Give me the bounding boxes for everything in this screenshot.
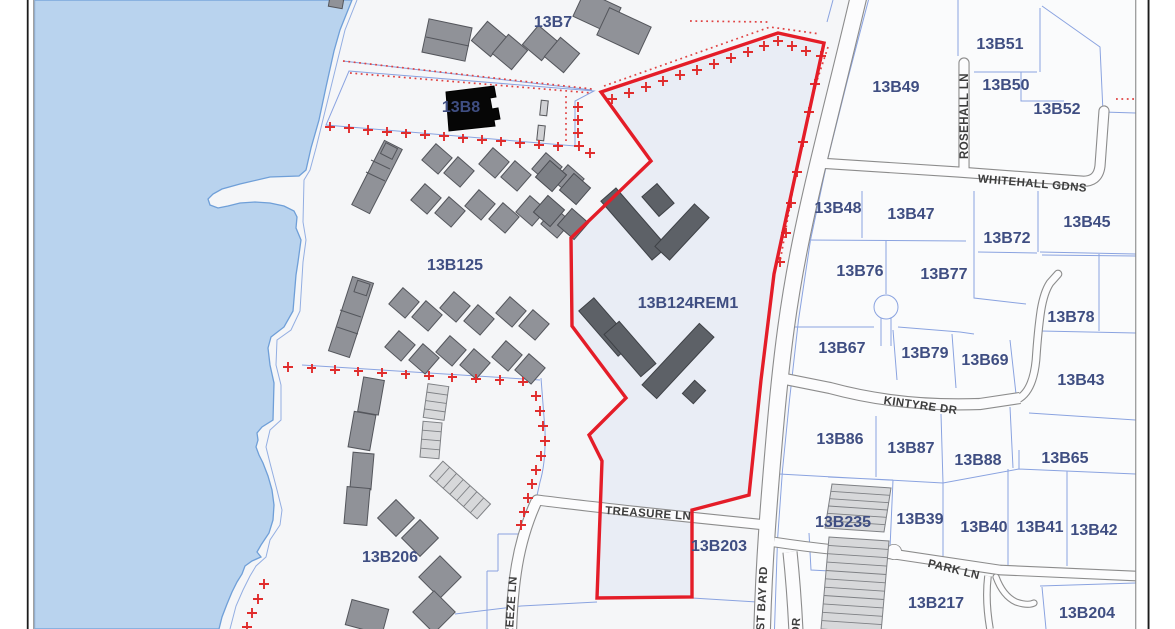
svg-text:13B42: 13B42 [1070, 522, 1117, 539]
svg-text:13B40: 13B40 [960, 519, 1007, 536]
svg-text:13B51: 13B51 [976, 36, 1023, 53]
svg-text:13B8: 13B8 [442, 99, 480, 116]
svg-text:13B45: 13B45 [1063, 214, 1110, 231]
svg-text:13B79: 13B79 [901, 345, 948, 362]
svg-text:13B47: 13B47 [887, 206, 934, 223]
svg-text:13B77: 13B77 [920, 266, 967, 283]
svg-text:13B69: 13B69 [961, 352, 1008, 369]
svg-text:13B88: 13B88 [954, 452, 1001, 469]
svg-text:13B39: 13B39 [896, 511, 943, 528]
svg-text:13B78: 13B78 [1047, 309, 1094, 326]
svg-text:13B65: 13B65 [1041, 450, 1088, 467]
svg-text:13B52: 13B52 [1033, 101, 1080, 118]
svg-text:13B72: 13B72 [983, 230, 1030, 247]
svg-text:13B7: 13B7 [534, 14, 572, 31]
svg-text:13B87: 13B87 [887, 440, 934, 457]
svg-text:13B235: 13B235 [815, 514, 871, 531]
svg-text:13B203: 13B203 [691, 538, 747, 555]
svg-text:ROSEHALL LN: ROSEHALL LN [959, 73, 971, 159]
svg-text:13B43: 13B43 [1057, 372, 1104, 389]
svg-text:13B124REM1: 13B124REM1 [638, 295, 739, 312]
svg-text:13B125: 13B125 [427, 257, 483, 274]
svg-text:13B206: 13B206 [362, 549, 418, 566]
svg-text:13B49: 13B49 [872, 79, 919, 96]
svg-text:13B67: 13B67 [818, 340, 865, 357]
svg-text:13B41: 13B41 [1016, 519, 1063, 536]
svg-text:13B48: 13B48 [814, 200, 861, 217]
svg-text:13B217: 13B217 [908, 595, 964, 612]
svg-text:13B76: 13B76 [836, 263, 883, 280]
svg-text:13B50: 13B50 [982, 77, 1029, 94]
svg-text:13B204: 13B204 [1059, 605, 1115, 622]
svg-text:13B86: 13B86 [816, 431, 863, 448]
svg-text:DR: DR [790, 617, 803, 629]
